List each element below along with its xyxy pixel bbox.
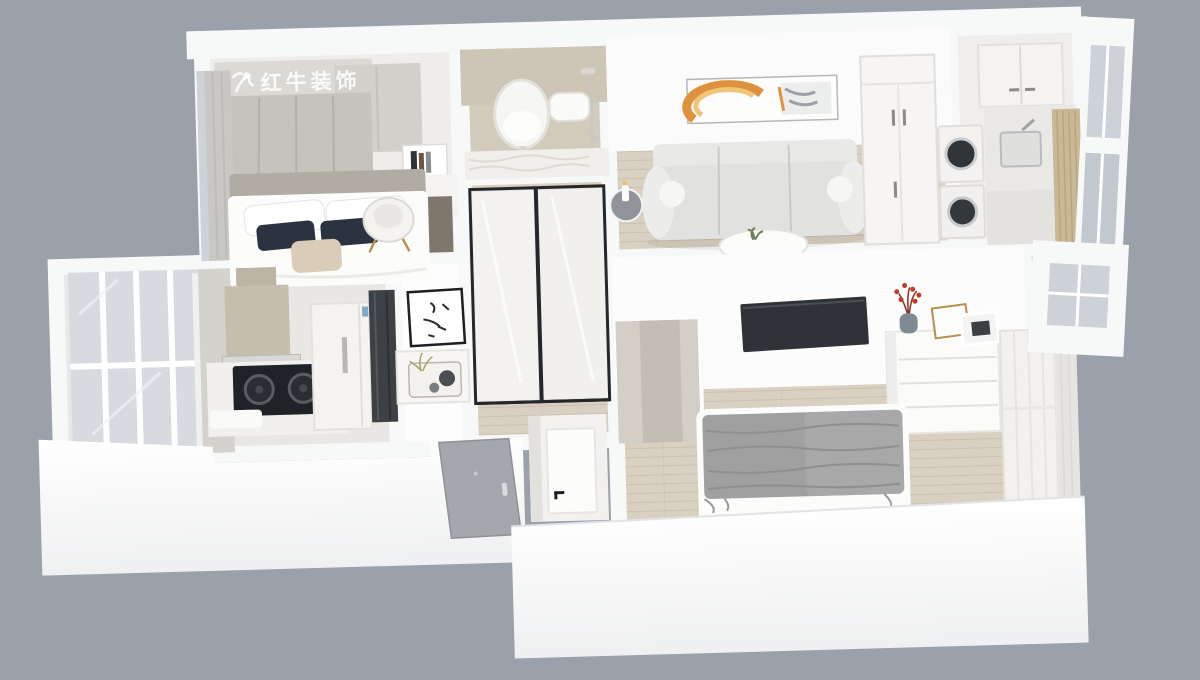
- range-hood: [224, 285, 290, 359]
- abstract-wall-art: [686, 75, 838, 123]
- console-table: [396, 350, 469, 404]
- floorplan-svg: 红牛装饰: [0, 0, 1200, 680]
- sink: [1000, 132, 1041, 167]
- second-bedroom-contents: 红牛装饰: [196, 56, 460, 289]
- living-room-contents: [606, 27, 986, 265]
- wall-mounted-tv: [740, 296, 869, 352]
- wardrobe-cabinet: [860, 55, 939, 245]
- counter-tray: [210, 409, 262, 428]
- balcony-contents: [68, 269, 209, 457]
- interior-white-door: [546, 428, 596, 513]
- calligraphy-art: [408, 289, 465, 346]
- floorplan-render: 红牛装饰: [0, 0, 1200, 680]
- stacked-washer-dryer: [938, 125, 985, 238]
- tall-dark-cabinet: [369, 290, 399, 423]
- frosted-sliding-doors: [470, 186, 610, 404]
- interior-door-nook: [528, 414, 609, 522]
- wall-hung-toilet: [549, 92, 590, 121]
- front-door: [439, 438, 522, 538]
- refrigerator: [311, 302, 372, 430]
- beige-pillow: [291, 238, 343, 273]
- watermark-text: 红牛装饰: [260, 69, 361, 96]
- vanity-counter: [465, 148, 610, 180]
- candle: [622, 185, 629, 201]
- hallway-contents: [470, 186, 610, 404]
